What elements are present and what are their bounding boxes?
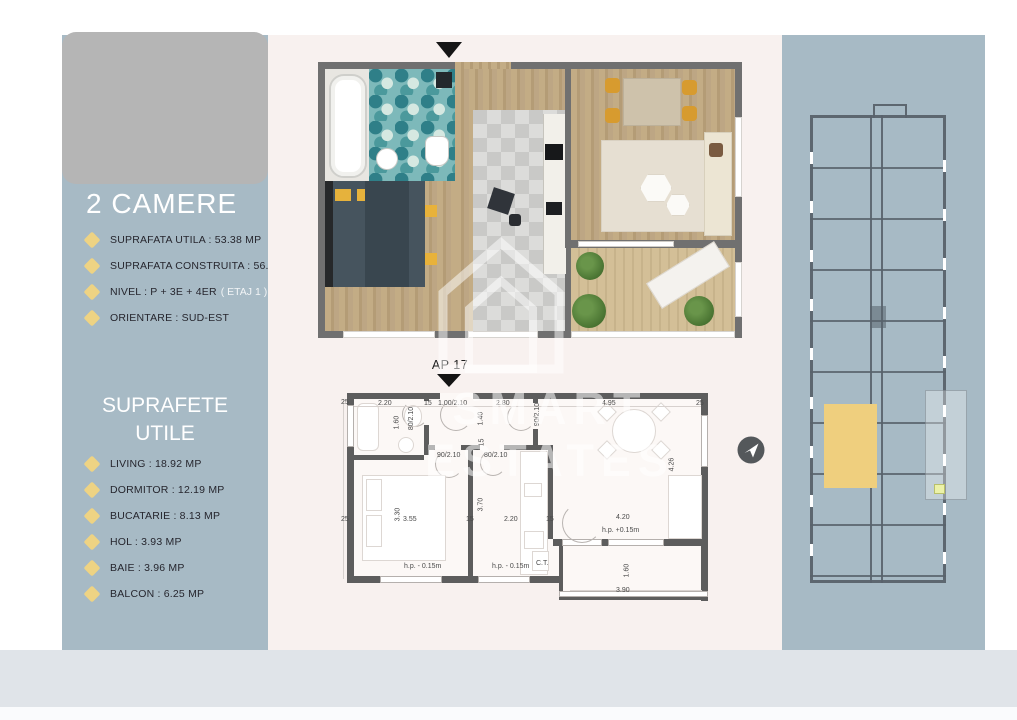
sofa-pillow: [709, 143, 723, 157]
dimension-label: 15: [424, 400, 432, 407]
dimension-label: 80/2.10: [484, 452, 507, 459]
dimension-label: h.p. +0.15m: [602, 527, 639, 534]
key-plan-top-section: [873, 104, 907, 118]
dimension-label: 80/2.10: [408, 407, 415, 430]
window: [468, 331, 538, 338]
key-plan-marker: [934, 484, 945, 494]
diamond-bullet-icon: [84, 508, 101, 525]
dimension-label: 3.30: [394, 508, 401, 522]
dining-chair: [682, 106, 697, 121]
bathtub: [329, 74, 367, 178]
pillow: [335, 189, 351, 201]
toilet: [425, 136, 449, 166]
plant: [576, 252, 604, 280]
section-title: SUPRAFETE UTILE: [62, 392, 268, 449]
room-item: BAIE : 3.96 MP: [82, 561, 224, 575]
dimension-label: 15: [478, 439, 485, 447]
diamond-bullet-icon: [84, 534, 101, 551]
highlighted-unit: [824, 404, 877, 488]
balcony-rail: [571, 331, 735, 338]
room-item: BALCON : 6.25 MP: [82, 587, 224, 601]
bedroom-floor: [325, 181, 455, 331]
room-item-label: BAIE : 3.96 MP: [110, 562, 185, 574]
bathroom-sink: [376, 148, 398, 170]
plant: [572, 294, 606, 328]
dimension-label: h.p. - 0.15m: [492, 563, 529, 570]
rendered-floorplan: [318, 62, 742, 338]
room-item-label: DORMITOR : 12.19 MP: [110, 484, 224, 496]
blanket: [365, 181, 409, 287]
window: [735, 262, 742, 317]
diamond-bullet-icon: [84, 482, 101, 499]
diamond-bullet-icon: [84, 258, 101, 275]
dimension-label: 25: [696, 400, 704, 407]
right-panel: [782, 35, 985, 650]
plan-dimensions: 2.2080/2.10151.00/2.102.804.9525251.601.…: [340, 383, 715, 615]
page-title: 2 CAMERE: [86, 188, 237, 220]
dimension-label: C.T.: [536, 560, 548, 567]
dimension-label: 15: [466, 516, 474, 523]
brochure-canvas: 2 CAMERE SUPRAFATA UTILA : 53.38 MP SUPR…: [0, 0, 1017, 720]
technical-floorplan: 2.2080/2.10151.00/2.102.804.9525251.601.…: [340, 383, 715, 615]
dimension-label: 1.40: [477, 412, 484, 426]
key-plan-core: [870, 306, 886, 328]
stool: [425, 205, 437, 217]
dimension-label: 1.60: [393, 416, 400, 430]
entrance-door-gap: [455, 62, 511, 69]
entrance-marker-icon: [436, 42, 462, 58]
dimension-label: 25: [341, 399, 349, 406]
diamond-bullet-icon: [84, 586, 101, 603]
unit-label: AP 17: [425, 358, 475, 372]
sliding-door: [578, 241, 674, 247]
dimension-label: 15: [546, 516, 554, 523]
room-item: DORMITOR : 12.19 MP: [82, 483, 224, 497]
kitchen-counter: [543, 114, 566, 274]
spec-item-suffix: ( ETAJ 1 ): [221, 286, 267, 298]
room-list: LIVING : 18.92 MP DORMITOR : 12.19 MP BU…: [82, 457, 224, 601]
washer: [436, 72, 452, 88]
dimension-label: 3.70: [477, 498, 484, 512]
dining-table: [623, 78, 681, 126]
dimension-label: 2.20: [504, 516, 518, 523]
sofa: [704, 132, 732, 236]
dimension-label: 4.20: [616, 514, 630, 521]
dimension-label: 4.26: [668, 458, 675, 472]
floorplan-area: AP 17: [268, 35, 782, 650]
room-item: LIVING : 18.92 MP: [82, 457, 224, 471]
kitchen-sink: [546, 202, 562, 215]
building-key-plan: [810, 115, 946, 583]
diamond-bullet-icon: [84, 456, 101, 473]
stool: [425, 253, 437, 265]
dimension-label: 2.20: [378, 400, 392, 407]
dining-chair: [682, 80, 697, 95]
page-bottom: [0, 707, 1017, 720]
compass-icon: [737, 436, 765, 464]
dimension-label: 2.80: [496, 400, 510, 407]
spec-item-label: SUPRAFATA UTILA : 53.38 MP: [110, 234, 261, 246]
diamond-bullet-icon: [84, 560, 101, 577]
dining-chair: [605, 78, 620, 93]
plant: [684, 296, 714, 326]
bed: [325, 181, 425, 287]
bistro-chair: [509, 214, 521, 226]
dimension-label: 90/2.10: [534, 403, 541, 426]
logo-placeholder: [62, 32, 268, 184]
spec-item-label: ORIENTARE : SUD-EST: [110, 312, 229, 324]
living-floor: [571, 69, 735, 240]
dining-chair: [605, 108, 620, 123]
dimension-label: h.p. - 0.15m: [404, 563, 441, 570]
room-item: BUCATARIE : 8.13 MP: [82, 509, 224, 523]
spec-item-label: NIVEL : P + 3E + 4ER: [110, 286, 217, 298]
room-item-label: LIVING : 18.92 MP: [110, 458, 202, 470]
dimension-label: 1.00/2.10: [438, 400, 467, 407]
room-item-label: BALCON : 6.25 MP: [110, 588, 204, 600]
diamond-bullet-icon: [84, 232, 101, 249]
dimension-label: 90/2.10: [437, 452, 460, 459]
room-item-label: BUCATARIE : 8.13 MP: [110, 510, 220, 522]
footer-strip: [0, 650, 1017, 707]
key-plan-annex: [925, 390, 967, 500]
dimension-label: 3.55: [403, 516, 417, 523]
diamond-bullet-icon: [84, 310, 101, 327]
room-item-label: HOL : 3.93 MP: [110, 536, 182, 548]
dimension-label: 1.60: [623, 564, 630, 578]
room-item: HOL : 3.93 MP: [82, 535, 224, 549]
dimension-label: 3.90: [616, 587, 630, 594]
stove: [545, 144, 563, 160]
window: [735, 117, 742, 197]
window: [343, 331, 435, 338]
left-panel: 2 CAMERE SUPRAFATA UTILA : 53.38 MP SUPR…: [62, 35, 268, 650]
dimension-label: 25: [341, 516, 349, 523]
dimension-label: 4.95: [602, 400, 616, 407]
diamond-bullet-icon: [84, 284, 101, 301]
